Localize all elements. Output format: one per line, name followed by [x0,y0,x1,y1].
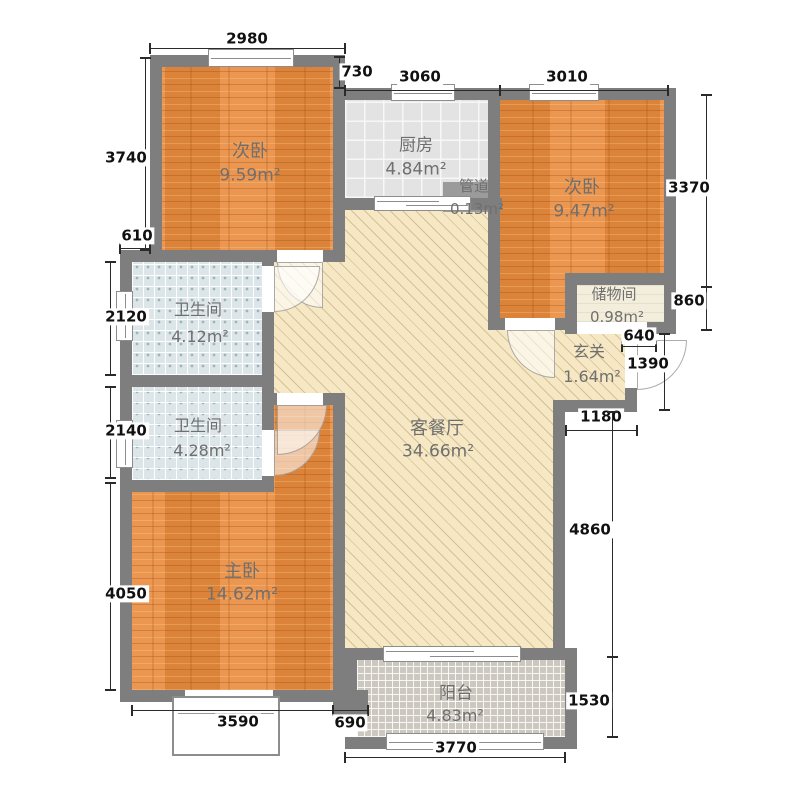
dimension-label: 860 [671,292,706,309]
dim-tick [105,477,116,479]
room-label: 4.12m² [171,328,229,346]
dim-tick [344,752,346,763]
dim-tick [334,56,345,58]
dimension-label: 3060 [397,68,443,85]
room-label: 4.83m² [426,707,484,725]
room-label: 9.47m² [553,203,614,222]
dimension-label: 1390 [625,355,671,372]
room-label: 1.64m² [563,368,621,386]
dim-tick [119,243,121,254]
dim-line [345,90,500,91]
room-label: 客餐厅 [410,419,464,439]
room-label: 管道 [459,178,489,195]
dim-tick [499,85,501,96]
dim-tick [659,333,670,335]
dimension-label: 3740 [103,149,149,166]
dim-tick [131,705,133,716]
dim-tick [105,374,116,376]
dimension-label: 4050 [103,585,149,602]
dim-line [345,757,565,758]
dim-tick [105,261,116,263]
dim-tick [607,411,618,413]
dim-tick [659,409,670,411]
dim-tick [140,57,151,59]
dimension-label: 610 [119,227,154,244]
wall [120,480,274,492]
dimension-label: 640 [621,327,656,344]
dimension-label: 3370 [666,179,712,196]
door-opening [262,430,274,476]
dim-line [500,90,668,91]
door-opening [262,266,274,312]
room-label: 4.84m² [385,161,446,180]
dim-tick [149,243,151,254]
room-label: 厨房 [399,137,433,156]
room-label: 玄关 [573,343,605,361]
dim-tick [344,43,346,54]
bedroom2-window [529,84,599,101]
dim-tick [105,386,116,388]
dim-tick [105,689,116,691]
door-opening [277,250,323,262]
dimension-label: 3010 [544,68,590,85]
room-label: 次卧 [232,142,268,162]
dim-tick [565,425,567,436]
dim-tick [667,85,669,96]
wall [565,273,676,285]
dimension-label: 2140 [103,422,149,439]
kitchen-window [391,84,455,101]
bedroom1-window [208,49,294,67]
living-dining-floor [345,210,488,330]
dim-line [566,430,637,431]
dim-tick [564,752,566,763]
room-label: 储物间 [591,286,636,303]
room-label: 0.13m² [450,201,504,218]
dim-tick [701,286,712,288]
room-label: 14.62m² [206,586,278,605]
wall [553,412,565,660]
dimension-label: 690 [332,714,367,731]
room-label: 卫生间 [174,417,222,435]
room-label: 卫生间 [174,301,222,319]
dim-line [132,710,333,711]
dim-tick [607,656,618,658]
wall [333,690,368,715]
room-label: 34.66m² [402,443,474,462]
dim-line [612,657,613,737]
dim-tick [149,43,151,54]
dim-tick [607,736,618,738]
dim-tick [344,85,346,96]
room-label: 次卧 [564,178,600,198]
room-label: 0.98m² [590,309,644,326]
dimension-label: 1530 [566,692,612,709]
balcony-sliding-door [383,646,521,662]
dim-tick [105,482,116,484]
dim-line [622,346,656,347]
door-opening [505,318,555,330]
dimension-label: 3770 [433,739,479,756]
room-label: 阳台 [439,685,473,704]
dimension-label: 730 [339,63,374,80]
room-label: 9.59m² [219,167,280,186]
dim-line [333,710,368,711]
door-opening [277,393,323,405]
dimension-label: 2980 [224,30,270,47]
wall [120,375,274,387]
dimension-label: 3590 [215,713,261,730]
room-label: 4.28m² [173,442,231,460]
dimension-label: 4860 [567,521,613,538]
dimension-label: 2120 [103,308,149,325]
room-label: 主卧 [224,562,260,582]
dim-line [150,48,345,49]
dim-tick [701,94,712,96]
dim-tick [701,329,712,331]
dim-line [120,248,150,249]
dim-tick [636,425,638,436]
floor-plan: 2980730306030103740610212021404050337086… [0,0,800,800]
